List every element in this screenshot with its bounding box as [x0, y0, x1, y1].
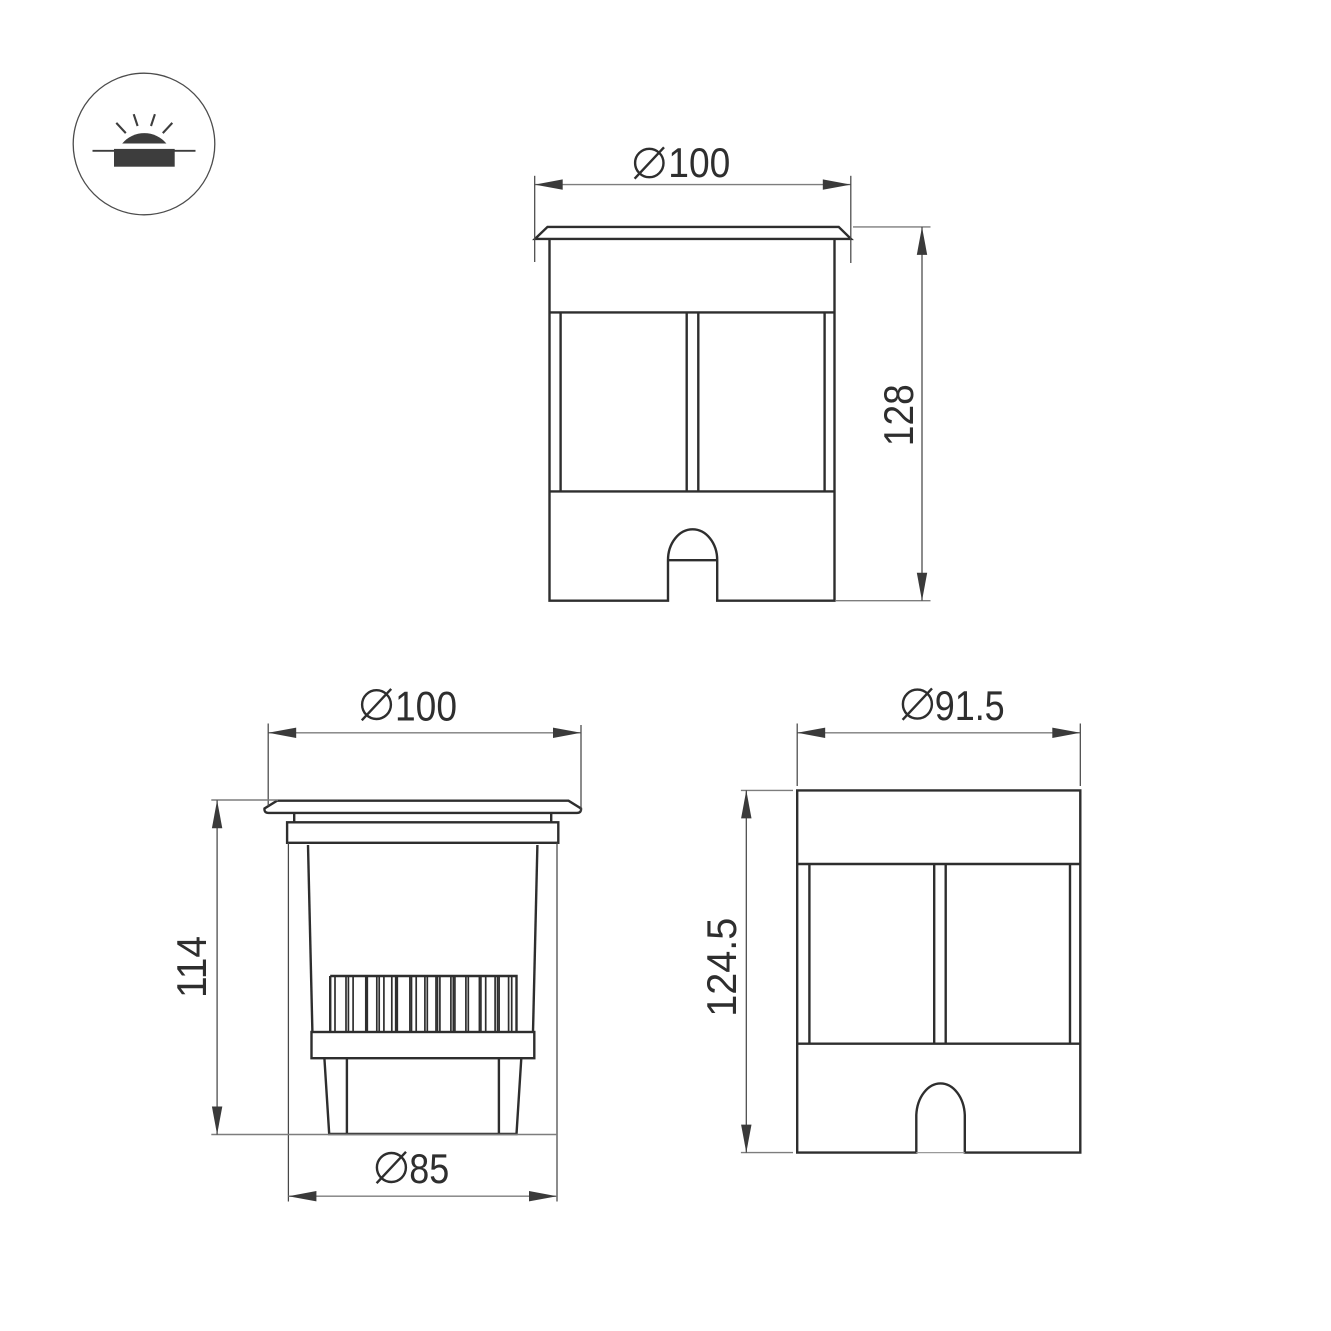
- svg-text:114: 114: [168, 936, 215, 998]
- svg-text:85: 85: [409, 1145, 449, 1192]
- svg-text:100: 100: [668, 139, 730, 186]
- svg-text:100: 100: [395, 682, 457, 729]
- svg-text:91.5: 91.5: [935, 682, 1005, 729]
- svg-text:128: 128: [875, 384, 922, 446]
- svg-text:124.5: 124.5: [698, 918, 745, 1017]
